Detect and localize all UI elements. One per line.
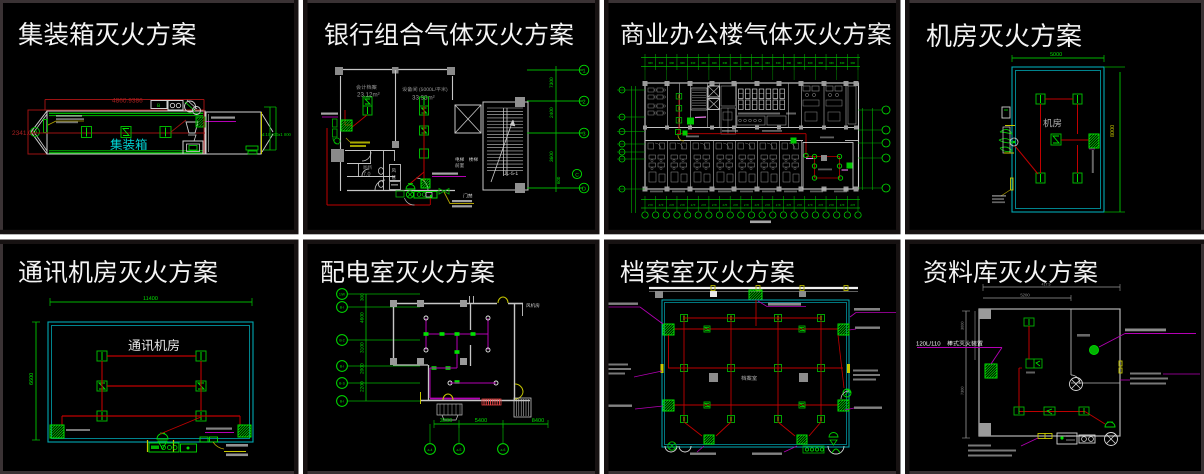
svg-text:3: 3 bbox=[582, 132, 585, 138]
svg-text:270: 270 bbox=[733, 203, 738, 207]
svg-text:270: 270 bbox=[765, 203, 770, 207]
svg-text:4860.9386: 4860.9386 bbox=[112, 98, 143, 105]
svg-text:330: 330 bbox=[691, 61, 696, 65]
svg-text:11400: 11400 bbox=[143, 296, 158, 302]
svg-text:270: 270 bbox=[701, 203, 706, 207]
svg-text:7.0: 7.0 bbox=[363, 172, 371, 178]
svg-text:120L/110: 120L/110 bbox=[916, 341, 941, 348]
svg-text:330: 330 bbox=[754, 61, 759, 65]
svg-text:B-S: B-S bbox=[339, 382, 345, 386]
svg-text:270: 270 bbox=[744, 203, 749, 207]
svg-text:300: 300 bbox=[360, 293, 365, 301]
svg-text:330: 330 bbox=[786, 61, 791, 65]
svg-text:330: 330 bbox=[744, 61, 749, 65]
svg-text:5400: 5400 bbox=[475, 418, 487, 424]
svg-text:B-I: B-I bbox=[340, 400, 344, 404]
svg-text:5000: 5000 bbox=[1050, 52, 1062, 58]
svg-text:330: 330 bbox=[797, 61, 802, 65]
svg-text:B-I: B-I bbox=[340, 306, 344, 310]
svg-text:3000: 3000 bbox=[440, 418, 452, 424]
svg-text:270: 270 bbox=[691, 203, 696, 207]
svg-text:a-6: a-6 bbox=[501, 448, 506, 452]
svg-text:270: 270 bbox=[680, 203, 685, 207]
svg-text:(5000L/: (5000L/ bbox=[419, 87, 437, 93]
svg-text:2: 2 bbox=[582, 100, 585, 106]
svg-text:600: 600 bbox=[556, 176, 561, 184]
svg-text:8400: 8400 bbox=[532, 418, 544, 424]
svg-text:5200: 5200 bbox=[1020, 293, 1030, 298]
svg-text:330: 330 bbox=[701, 61, 706, 65]
svg-text:330: 330 bbox=[808, 61, 813, 65]
svg-text:a-4: a-4 bbox=[428, 448, 433, 452]
svg-text:270: 270 bbox=[818, 203, 823, 207]
svg-text:C: C bbox=[575, 173, 579, 179]
svg-text:1: 1 bbox=[582, 69, 585, 75]
svg-text:2200: 2200 bbox=[360, 381, 366, 392]
svg-text:270: 270 bbox=[659, 203, 664, 207]
svg-text:330: 330 bbox=[829, 61, 834, 65]
svg-text:270: 270 bbox=[829, 203, 834, 207]
svg-text:7300: 7300 bbox=[549, 77, 555, 88]
svg-text:417.5: 417.5 bbox=[1042, 283, 1051, 287]
svg-text:4600: 4600 bbox=[360, 312, 366, 323]
svg-text:330: 330 bbox=[723, 61, 728, 65]
svg-text:330: 330 bbox=[765, 61, 770, 65]
svg-text:270: 270 bbox=[850, 203, 855, 207]
svg-text:4:10 000x1 000: 4:10 000x1 000 bbox=[262, 132, 292, 137]
svg-text:330: 330 bbox=[659, 61, 664, 65]
svg-text:330: 330 bbox=[818, 61, 823, 65]
svg-text:2000: 2000 bbox=[360, 363, 366, 374]
svg-text:6600: 6600 bbox=[29, 373, 35, 385]
svg-text:3000: 3000 bbox=[961, 322, 965, 330]
svg-text:3600: 3600 bbox=[549, 151, 555, 162]
svg-text:270: 270 bbox=[669, 203, 674, 207]
svg-text:270: 270 bbox=[808, 203, 813, 207]
svg-text:330: 330 bbox=[669, 61, 674, 65]
svg-text:330: 330 bbox=[733, 61, 738, 65]
svg-text:330: 330 bbox=[840, 61, 845, 65]
svg-text:270: 270 bbox=[754, 203, 759, 207]
svg-text:330: 330 bbox=[680, 61, 685, 65]
svg-text:2400: 2400 bbox=[549, 107, 555, 118]
svg-text:270: 270 bbox=[797, 203, 802, 207]
svg-text:3100: 3100 bbox=[360, 342, 366, 353]
svg-text:330: 330 bbox=[648, 61, 653, 65]
svg-text:270: 270 bbox=[840, 203, 845, 207]
svg-text:D: D bbox=[582, 187, 586, 193]
svg-text:33.98m²: 33.98m² bbox=[412, 95, 435, 102]
svg-text:270: 270 bbox=[723, 203, 728, 207]
svg-text:JL-5-1: JL-5-1 bbox=[504, 171, 518, 177]
svg-text:330: 330 bbox=[850, 61, 855, 65]
svg-text:270: 270 bbox=[712, 203, 717, 207]
svg-text:330: 330 bbox=[776, 61, 781, 65]
svg-text:270: 270 bbox=[648, 203, 653, 207]
svg-text:330: 330 bbox=[712, 61, 717, 65]
svg-text:B-I: B-I bbox=[340, 365, 344, 369]
svg-text:270: 270 bbox=[776, 203, 781, 207]
svg-text:B-2: B-2 bbox=[339, 339, 344, 343]
svg-text:7300: 7300 bbox=[961, 387, 965, 395]
svg-text:270: 270 bbox=[786, 203, 791, 207]
svg-text:1/W: 1/W bbox=[339, 293, 346, 297]
svg-text:a-5: a-5 bbox=[457, 448, 462, 452]
svg-text:8000: 8000 bbox=[1110, 125, 1116, 137]
